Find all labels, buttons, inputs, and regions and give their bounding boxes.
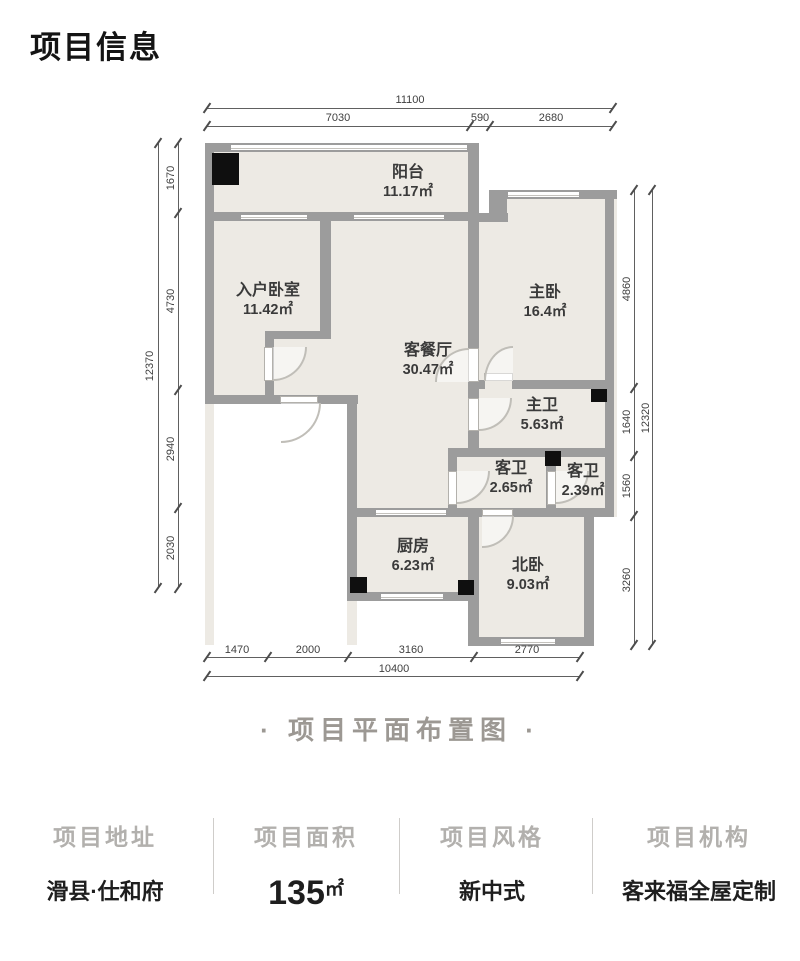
info-label: 项目地址	[46, 818, 163, 852]
room-name: 入户卧室	[236, 281, 300, 301]
room-label-guest-bath-2: 客卫 2.39㎡	[562, 462, 605, 501]
door-leaf	[468, 398, 479, 431]
dim-line	[652, 190, 653, 645]
room-label-kitchen: 厨房 6.23㎡	[392, 537, 435, 576]
window	[507, 191, 580, 198]
dim-label: 2770	[515, 644, 539, 656]
window	[240, 214, 308, 220]
wall	[468, 143, 479, 222]
room-area: 9.03㎡	[507, 576, 550, 595]
info-value: 新中式	[459, 879, 525, 904]
room-area: 11.42㎡	[236, 301, 300, 320]
dim-label: 11100	[396, 94, 425, 106]
dim-label: 7030	[326, 112, 350, 124]
info-unit: ㎡	[325, 879, 344, 900]
dim-label: 4860	[621, 277, 633, 301]
page: 项目信息	[0, 0, 800, 961]
info-col-address: 项目地址 滑县·仕和府	[46, 818, 163, 906]
column-block	[545, 451, 561, 466]
dim-line	[207, 126, 613, 127]
dim-line	[634, 190, 635, 645]
dim-label: 1670	[165, 166, 177, 190]
room-area: 30.47㎡	[403, 361, 454, 380]
dim-line	[207, 657, 580, 658]
exterior-area	[479, 190, 489, 214]
exterior-area	[479, 143, 617, 191]
door-leaf	[264, 347, 273, 381]
wall	[468, 508, 479, 645]
window	[375, 509, 447, 516]
room-name: 客卫	[490, 459, 533, 479]
dim-label: 2940	[165, 437, 177, 461]
column-block	[591, 389, 607, 402]
wall	[347, 395, 357, 601]
info-value: 滑县·仕和府	[46, 879, 163, 904]
tick	[174, 583, 183, 594]
room-area: 2.65㎡	[490, 479, 533, 498]
window	[353, 214, 445, 220]
dim-label: 4730	[165, 289, 177, 313]
info-label: 项目机构	[622, 818, 776, 852]
tick	[154, 583, 163, 594]
room-name: 主卫	[521, 396, 564, 416]
room-name: 阳台	[383, 163, 433, 183]
column-block	[212, 153, 239, 185]
dim-label: 590	[471, 112, 489, 124]
info-value: 135	[268, 874, 325, 912]
exterior-area	[594, 517, 617, 645]
info-label: 项目风格	[440, 818, 544, 852]
plan-caption: · 项目平面布置图 ·	[260, 710, 540, 747]
dim-label: 3260	[621, 568, 633, 592]
window	[380, 593, 444, 600]
info-col-style: 项目风格 新中式	[440, 818, 544, 906]
wall	[265, 331, 331, 339]
page-title: 项目信息	[30, 22, 162, 67]
wall	[448, 448, 613, 457]
window	[230, 144, 468, 151]
dim-line	[158, 143, 159, 588]
dim-label: 1640	[621, 410, 633, 434]
dim-line	[207, 108, 613, 109]
dim-line	[207, 676, 580, 677]
room-label-balcony: 阳台 11.17㎡	[383, 163, 433, 202]
info-value: 客来福全屋定制	[622, 879, 776, 904]
room-area: 16.4㎡	[524, 303, 567, 322]
column-block	[350, 577, 367, 593]
wall	[584, 516, 594, 646]
room-name: 客卫	[562, 462, 605, 482]
info-label: 项目面积	[254, 818, 358, 852]
door-leaf	[280, 396, 318, 403]
room-name: 客餐厅	[403, 341, 454, 361]
dim-label: 1470	[225, 644, 249, 656]
wall	[605, 190, 614, 517]
wall	[468, 221, 479, 348]
tick	[648, 640, 657, 651]
wall	[320, 213, 331, 339]
exterior-area	[357, 601, 468, 645]
room-area: 2.39㎡	[562, 482, 605, 501]
dim-label: 3160	[399, 644, 423, 656]
door-leaf	[547, 471, 556, 505]
dim-label: 2000	[296, 644, 320, 656]
info-col-agency: 项目机构 客来福全屋定制	[622, 818, 776, 906]
dim-label: 1560	[621, 474, 633, 498]
door-leaf	[482, 509, 513, 516]
divider	[213, 818, 214, 894]
wall	[512, 380, 613, 389]
door-leaf	[448, 471, 457, 505]
divider	[592, 818, 593, 894]
info-col-area: 项目面积 135㎡	[254, 818, 358, 913]
column-block	[458, 580, 474, 595]
room-label-north-bedroom: 北卧 9.03㎡	[507, 556, 550, 595]
dim-label: 2030	[165, 536, 177, 560]
tick	[630, 640, 639, 651]
divider	[399, 818, 400, 894]
room-name: 厨房	[392, 537, 435, 557]
room-area: 5.63㎡	[521, 416, 564, 435]
room-label-guest-bath-1: 客卫 2.65㎡	[490, 459, 533, 498]
room-name: 主卧	[524, 283, 567, 303]
room-label-master-bath: 主卫 5.63㎡	[521, 396, 564, 435]
room-area: 11.17㎡	[383, 183, 433, 202]
room-name: 北卧	[507, 556, 550, 576]
dim-label: 12320	[640, 403, 652, 434]
room-label-master-bedroom: 主卧 16.4㎡	[524, 283, 567, 322]
room-label-entry-bedroom: 入户卧室 11.42㎡	[236, 281, 300, 320]
dim-label: 10400	[379, 663, 410, 675]
room-label-living-dining: 客餐厅 30.47㎡	[403, 341, 454, 380]
dim-label: 12370	[144, 351, 156, 382]
room-area: 6.23㎡	[392, 557, 435, 576]
door-leaf	[468, 348, 479, 382]
dim-label: 2680	[539, 112, 563, 124]
